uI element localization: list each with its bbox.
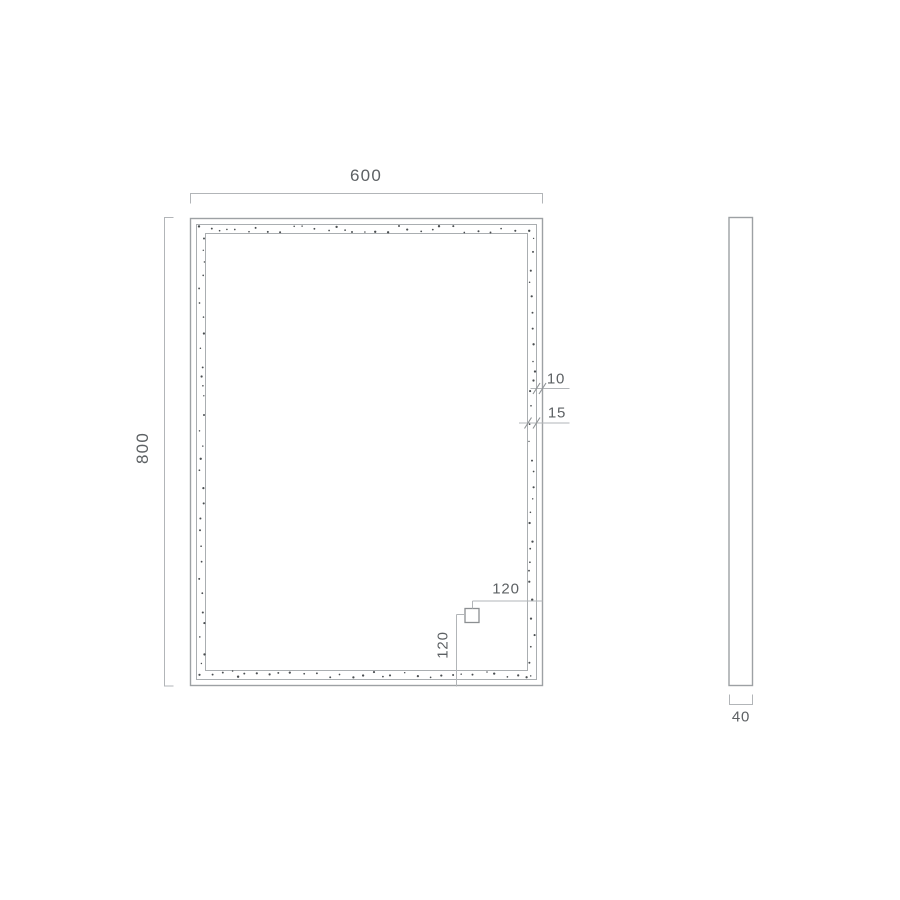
led-dot — [528, 522, 530, 524]
led-dot — [203, 250, 204, 251]
led-dot — [406, 229, 408, 231]
dim-height-bracket — [165, 218, 174, 687]
led-dot — [211, 228, 213, 230]
led-dot — [199, 430, 200, 431]
led-dot — [364, 231, 366, 233]
led-dot — [256, 672, 258, 674]
led-dot — [530, 405, 532, 407]
led-dot — [532, 328, 534, 330]
led-dot — [269, 673, 271, 675]
led-dot — [382, 676, 384, 678]
led-dot — [477, 230, 479, 232]
led-dot — [525, 676, 527, 678]
led-dot — [202, 385, 204, 387]
led-dot — [203, 622, 205, 624]
front-view — [191, 219, 543, 686]
led-dot — [328, 230, 330, 232]
led-dot — [203, 653, 205, 655]
led-dot — [204, 261, 205, 262]
led-dot — [387, 231, 389, 233]
led-dot — [201, 663, 202, 664]
led-dot — [533, 238, 534, 239]
led-dot — [248, 231, 250, 233]
led-dot — [329, 676, 331, 678]
led-dot — [267, 231, 269, 233]
led-dot — [316, 672, 318, 674]
side-view — [729, 218, 753, 686]
led-dot — [198, 225, 200, 227]
led-dot — [440, 675, 442, 677]
led-dot — [198, 674, 200, 676]
led-dot — [255, 227, 257, 229]
led-dot — [460, 673, 462, 675]
led-dot — [313, 228, 315, 230]
front-inner-frame-line — [206, 234, 528, 671]
dim-label-sensor-from-bottom: 120 — [435, 631, 452, 658]
led-dot — [203, 502, 205, 504]
led-dot — [432, 229, 434, 231]
led-dot — [532, 251, 534, 253]
led-dot — [200, 545, 202, 547]
led-dot — [529, 548, 531, 550]
dimension-lines — [165, 194, 753, 705]
led-dot — [531, 295, 533, 297]
led-dot — [532, 361, 534, 363]
led-dot — [438, 225, 440, 227]
dim-label-sensor-from-right: 120 — [492, 581, 519, 598]
led-dot — [430, 677, 432, 679]
led-dot — [198, 287, 200, 289]
led-dot — [289, 671, 291, 673]
front-outer-frame — [191, 219, 543, 686]
led-dot — [530, 646, 532, 648]
led-dot — [203, 414, 205, 416]
led-dot — [398, 225, 400, 227]
led-dot — [201, 375, 203, 377]
led-dot — [199, 469, 201, 471]
led-dots-pattern — [198, 225, 536, 678]
led-dot — [219, 230, 221, 232]
led-dot — [420, 230, 422, 232]
led-dot — [199, 529, 201, 531]
dim-width-bracket — [191, 194, 543, 204]
led-dot — [201, 592, 203, 594]
led-dot — [528, 570, 530, 572]
led-dot — [532, 498, 533, 499]
led-dot — [335, 226, 337, 228]
led-dot — [452, 225, 454, 227]
led-dot — [351, 231, 353, 233]
led-dot — [530, 675, 532, 677]
led-dot — [303, 673, 305, 675]
led-dot — [452, 674, 454, 676]
sensor-square — [465, 609, 479, 623]
led-dot — [417, 675, 419, 677]
front-mid-frame-line — [197, 225, 537, 680]
led-dot — [529, 390, 531, 392]
dim-label-width: 600 — [350, 166, 382, 186]
led-dot — [200, 458, 202, 460]
led-dot — [234, 229, 236, 231]
led-dot — [404, 672, 405, 673]
side-profile-outline — [729, 218, 753, 686]
dim-sensor-bottom-leader — [457, 615, 466, 687]
led-dot — [202, 445, 203, 446]
led-dot — [243, 673, 245, 675]
led-dot — [232, 670, 234, 672]
led-dot — [199, 302, 201, 304]
led-dot — [374, 231, 376, 233]
led-dot — [222, 672, 224, 674]
led-dot — [373, 671, 375, 673]
led-dot — [279, 231, 281, 233]
led-dot — [200, 347, 202, 349]
led-dot — [344, 229, 346, 231]
led-dot — [532, 379, 534, 381]
led-dot — [530, 270, 532, 272]
led-dot — [277, 672, 279, 674]
led-dot — [199, 636, 201, 638]
led-dot — [237, 676, 239, 678]
led-dot — [490, 232, 492, 234]
led-dot — [534, 370, 536, 372]
led-dot — [514, 230, 516, 232]
led-dot — [301, 225, 302, 226]
led-dot — [212, 674, 214, 676]
led-dot — [529, 281, 531, 283]
led-dot — [500, 228, 502, 230]
led-dot — [202, 611, 204, 613]
led-dot — [533, 486, 535, 488]
led-dot — [532, 343, 534, 345]
led-dot — [202, 487, 204, 489]
technical-drawing-canvas: 600 800 10 15 120 120 40 — [0, 0, 900, 900]
led-dot — [203, 332, 205, 334]
led-dot — [293, 226, 295, 228]
dim-label-depth: 40 — [732, 709, 750, 726]
dim-label-frame-edge: 10 — [547, 371, 565, 388]
led-dot — [389, 674, 391, 676]
led-dot — [203, 316, 205, 318]
led-dot — [530, 617, 532, 619]
dim-label-led-band: 15 — [548, 405, 566, 422]
led-dot — [532, 312, 534, 314]
led-dot — [533, 471, 535, 473]
led-dot — [486, 671, 488, 673]
led-dot — [493, 672, 495, 674]
dim-label-height: 800 — [133, 432, 153, 464]
dim-sensor-right-leader — [473, 601, 543, 609]
led-dot — [517, 674, 519, 676]
led-dot — [531, 460, 533, 462]
led-dot — [203, 395, 204, 396]
led-dot — [528, 662, 530, 664]
led-dot — [352, 676, 354, 678]
led-dot — [534, 634, 536, 636]
led-dot — [472, 674, 474, 676]
led-dot — [198, 578, 200, 580]
led-dot — [528, 441, 529, 442]
led-dot — [202, 275, 204, 277]
led-dot — [507, 676, 509, 678]
dim-depth-bracket — [730, 695, 753, 705]
led-dot — [199, 517, 201, 519]
led-dot — [463, 232, 465, 234]
led-dot — [201, 561, 203, 563]
led-dot — [203, 238, 205, 240]
led-dot — [531, 540, 533, 542]
led-dot — [362, 674, 364, 676]
led-dot — [528, 581, 530, 583]
led-dot — [528, 230, 530, 232]
led-dot — [339, 674, 341, 676]
led-dot — [226, 229, 228, 231]
led-dot — [529, 423, 531, 425]
led-dot — [202, 366, 204, 368]
led-dot — [529, 561, 531, 563]
led-dot — [530, 512, 532, 514]
